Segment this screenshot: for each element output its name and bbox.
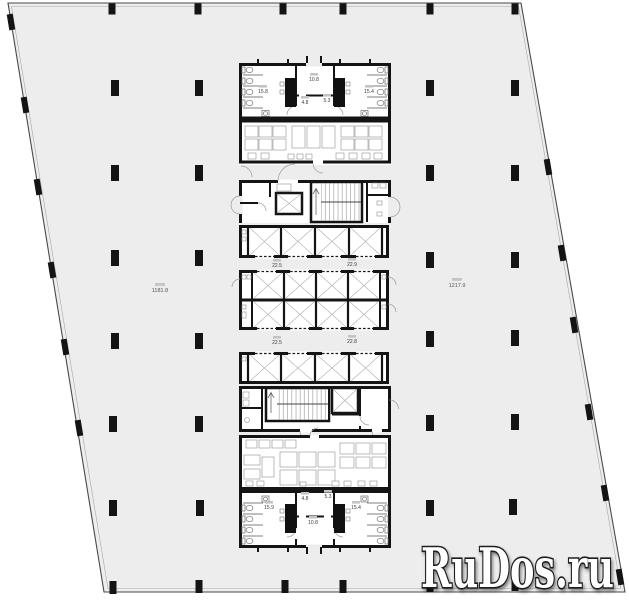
svg-text:22.5: 22.5 [272,340,282,346]
area-label-lift-hall-upper-left: 22.5 [272,259,282,269]
svg-text:10.8: 10.8 [308,520,318,526]
shaft-duct-bottom-right [334,504,345,533]
building-core [231,56,400,554]
area-label-corridor-top: 10.8 [309,73,319,83]
lift-bank-double [232,270,396,331]
svg-text:22.5: 22.5 [272,263,282,269]
lift-row-upper [239,225,389,259]
lounge-bottom [239,428,391,493]
washroom-band-top [239,56,391,120]
area-label-lift-hall-upper-right: 22.9 [347,258,357,268]
svg-text:4.8: 4.8 [302,496,309,502]
elevator-shaft-single-top [276,193,302,214]
svg-text:5.3: 5.3 [324,98,331,104]
svg-text:15.4: 15.4 [351,505,361,511]
floor-plan-screenshot: 10.8 15.8 15.4 4.8 5.3 22.5 22.9 22.5 22… [0,0,629,600]
svg-text:22.9: 22.9 [347,262,357,268]
svg-text:22.8: 22.8 [347,339,357,345]
svg-text:15.4: 15.4 [364,89,374,95]
svg-text:1217.9: 1217.9 [449,283,466,289]
svg-text:15.9: 15.9 [264,505,274,511]
area-label-corridor-bottom: 10.8 [308,516,318,526]
area-label-wc-bottom-left: 15.9 [264,501,274,511]
svg-text:15.8: 15.8 [258,89,268,95]
shaft-duct-bottom-left [285,504,296,533]
area-label-lift-hall-lower-left: 22.5 [272,336,282,346]
svg-text:4.8: 4.8 [302,100,309,106]
svg-text:5.3: 5.3 [325,494,332,500]
watermark-rudos: RuDos.ru [421,536,614,600]
shaft-duct-top-right [334,78,345,107]
svg-text:1181.8: 1181.8 [152,288,168,294]
area-label-wc-top-left: 15.8 [258,85,268,95]
shaft-duct-top-left [285,78,296,107]
area-label-wc-top-right: 15.4 [364,85,374,95]
lift-row-lower [239,352,389,385]
lounge-top [239,117,391,174]
stairs-top [311,182,362,222]
area-label-room-top-right: 5.3 [323,94,331,104]
stairs-bottom [266,388,329,421]
area-label-room-bottom-left: 4.8 [301,492,309,502]
area-label-lift-hall-lower-right: 22.8 [347,335,357,345]
elevator-shaft-single-bottom [332,388,358,413]
area-label-room-bottom-right: 5.3 [324,490,332,500]
area-label-wc-bottom-right: 15.4 [351,501,361,511]
area-label-room-top-left: 4.8 [301,96,309,106]
svg-text:10.8: 10.8 [309,77,319,83]
floor-plan-svg: 10.8 15.8 15.4 4.8 5.3 22.5 22.9 22.5 22… [0,0,629,600]
